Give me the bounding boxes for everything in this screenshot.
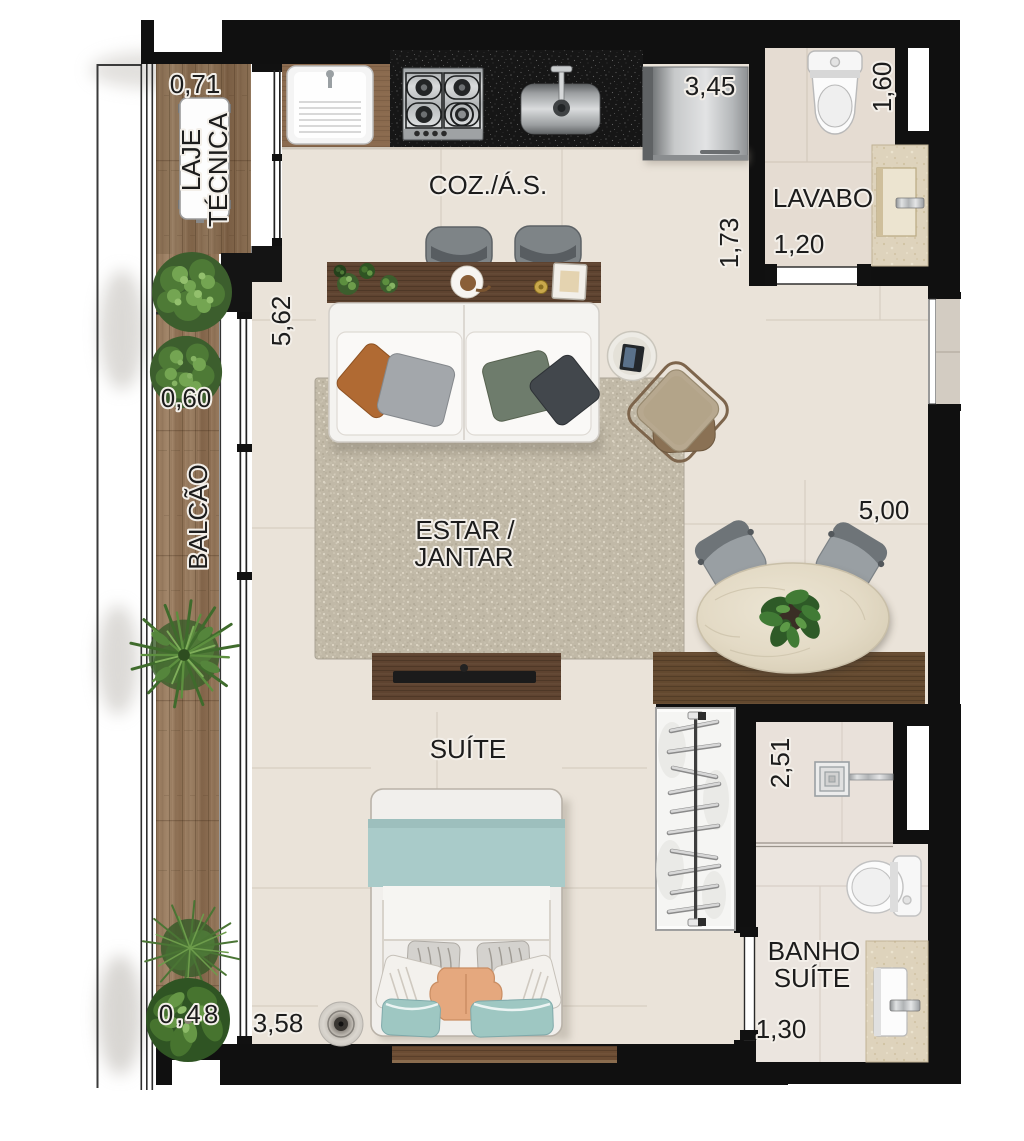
svg-text:BALCÃO: BALCÃO [183, 464, 213, 570]
svg-text:SUÍTE: SUÍTE [430, 734, 507, 764]
svg-text:ESTAR /: ESTAR / [415, 515, 515, 545]
svg-text:5,00: 5,00 [859, 495, 910, 525]
svg-text:COZ./Á.S.: COZ./Á.S. [429, 170, 547, 200]
svg-text:3,45: 3,45 [685, 71, 736, 101]
svg-text:1,30: 1,30 [756, 1014, 807, 1044]
svg-text:1,73: 1,73 [714, 218, 744, 269]
svg-text:3,58: 3,58 [253, 1008, 304, 1038]
svg-text:5,62: 5,62 [266, 296, 296, 347]
svg-text:BANHO: BANHO [768, 936, 860, 966]
svg-text:SUÍTE: SUÍTE [774, 963, 851, 993]
svg-text:0,48: 0,48 [159, 999, 222, 1029]
svg-text:0,71: 0,71 [170, 69, 221, 99]
svg-text:1,20: 1,20 [774, 229, 825, 259]
svg-text:1,60: 1,60 [867, 62, 897, 113]
svg-text:JANTAR: JANTAR [414, 542, 513, 572]
svg-text:LAJE: LAJE [176, 129, 206, 191]
svg-text:TÉCNICA: TÉCNICA [203, 112, 233, 227]
svg-text:0,60: 0,60 [161, 383, 212, 413]
svg-text:2,51: 2,51 [765, 738, 795, 789]
svg-text:LAVABO: LAVABO [773, 183, 873, 213]
